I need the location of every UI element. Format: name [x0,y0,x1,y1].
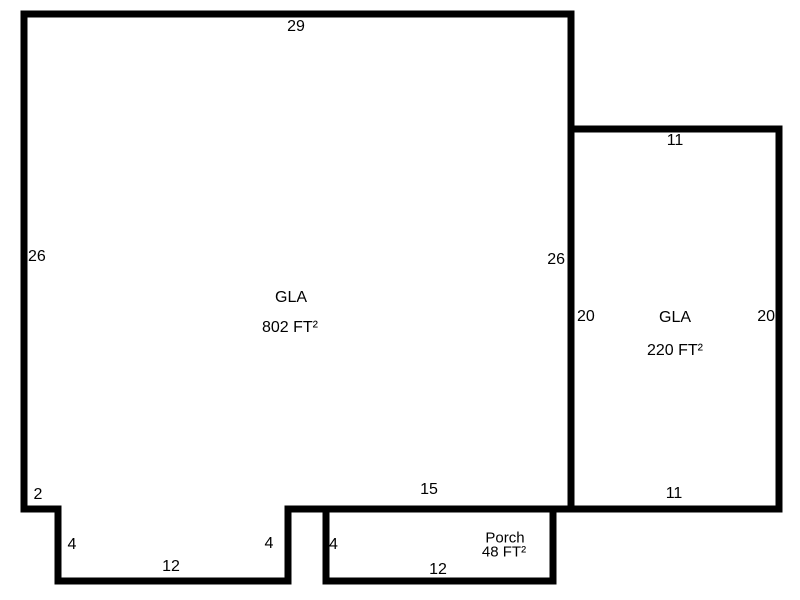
dim-main-step: 2 [34,487,43,503]
dim-right-right: 20 [757,309,775,325]
dim-right-left: 20 [577,309,595,325]
dim-right-bottom: 11 [666,486,683,502]
dim-main-bottom: 15 [420,482,438,498]
dim-main-left: 26 [28,249,46,265]
dim-main-right: 26 [547,252,565,268]
right-gla-name: GLA [659,310,691,326]
dim-right-top: 11 [667,133,684,149]
main-gla-name: GLA [275,290,307,306]
dim-porch-bottom: 12 [429,562,447,578]
dim-main-top: 29 [287,19,305,35]
main-gla-area: 802 FT² [262,320,318,336]
sketch-walls [0,0,800,600]
floorplan-sketch: 29 26 26 15 2 4 12 4 GLA 802 FT² 11 20 2… [0,0,800,600]
dim-main-notch-left: 4 [68,537,77,553]
dim-main-notch-right: 4 [265,536,274,552]
dim-porch-left: 4 [329,537,338,553]
dim-main-notch-bottom: 12 [162,559,180,575]
right-gla-area: 220 FT² [647,343,703,359]
porch-area: 48 FT² [482,545,526,560]
